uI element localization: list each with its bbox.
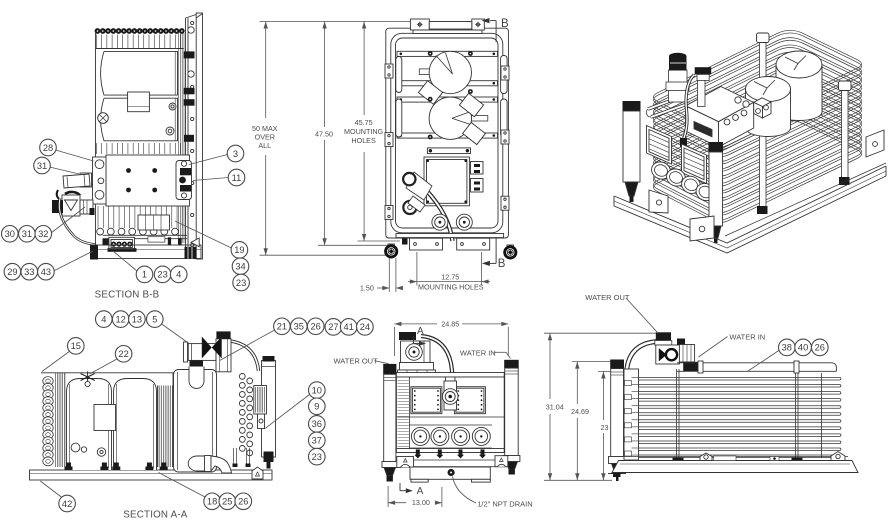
svg-text:ALL: ALL [258,141,271,150]
svg-text:24.85: 24.85 [441,319,459,328]
svg-text:WATER OUT: WATER OUT [334,356,379,365]
svg-text:28: 28 [43,143,53,153]
svg-text:19: 19 [234,245,244,255]
svg-text:11: 11 [232,173,242,183]
svg-text:15: 15 [71,341,81,351]
svg-text:1.50: 1.50 [360,284,374,293]
svg-text:A: A [417,486,424,497]
svg-text:10: 10 [312,385,322,395]
svg-text:9: 9 [314,402,319,412]
svg-text:HOLES: HOLES [351,136,376,145]
svg-text:24: 24 [360,322,370,332]
svg-text:21: 21 [277,322,287,332]
svg-text:18: 18 [207,497,217,507]
svg-text:23: 23 [157,270,167,280]
svg-text:SECTION A-A: SECTION A-A [123,510,188,521]
svg-text:23: 23 [236,278,246,288]
svg-text:B: B [498,258,506,270]
svg-text:42: 42 [62,499,72,509]
svg-text:41: 41 [344,322,354,332]
svg-text:43: 43 [41,267,51,277]
svg-text:33: 33 [24,267,34,277]
svg-text:31: 31 [37,161,47,171]
svg-text:A: A [417,326,424,337]
svg-text:13.00: 13.00 [412,498,430,507]
svg-text:38: 38 [782,343,792,353]
svg-text:MOUNTING: MOUNTING [344,127,384,136]
svg-text:45.75: 45.75 [355,118,373,127]
svg-text:13: 13 [132,314,142,324]
svg-text:24.69: 24.69 [571,407,589,416]
svg-text:SECTION B-B: SECTION B-B [95,290,160,301]
svg-text:WATER OUT: WATER OUT [585,293,630,302]
svg-text:47.50: 47.50 [315,130,333,139]
svg-text:26: 26 [238,497,248,507]
svg-text:30: 30 [5,229,15,239]
svg-text:40: 40 [798,343,808,353]
svg-text:36: 36 [312,419,322,429]
svg-text:32: 32 [38,229,48,239]
svg-text:WATER IN: WATER IN [729,332,765,341]
svg-text:26: 26 [311,322,321,332]
svg-text:WATER IN: WATER IN [460,348,496,357]
svg-text:23: 23 [601,423,609,432]
svg-text:12.75: 12.75 [441,273,459,282]
svg-text:1/2" NPT DRAIN: 1/2" NPT DRAIN [477,499,532,508]
svg-text:MOUNTING HOLES: MOUNTING HOLES [418,282,484,291]
svg-text:4: 4 [101,314,106,324]
svg-text:29: 29 [7,267,17,277]
svg-text:27: 27 [328,322,338,332]
svg-text:23: 23 [312,452,322,462]
svg-text:12: 12 [116,314,126,324]
svg-text:34: 34 [235,262,245,272]
svg-text:3: 3 [233,149,238,159]
svg-text:B: B [501,18,509,30]
svg-text:1: 1 [142,270,147,280]
svg-text:4: 4 [176,270,181,280]
svg-text:25: 25 [222,497,232,507]
svg-text:5: 5 [152,314,157,324]
svg-text:37: 37 [312,436,322,446]
svg-text:35: 35 [294,322,304,332]
svg-text:22: 22 [118,349,128,359]
svg-text:31.04: 31.04 [546,403,564,412]
svg-text:26: 26 [815,343,825,353]
svg-text:31: 31 [22,229,32,239]
